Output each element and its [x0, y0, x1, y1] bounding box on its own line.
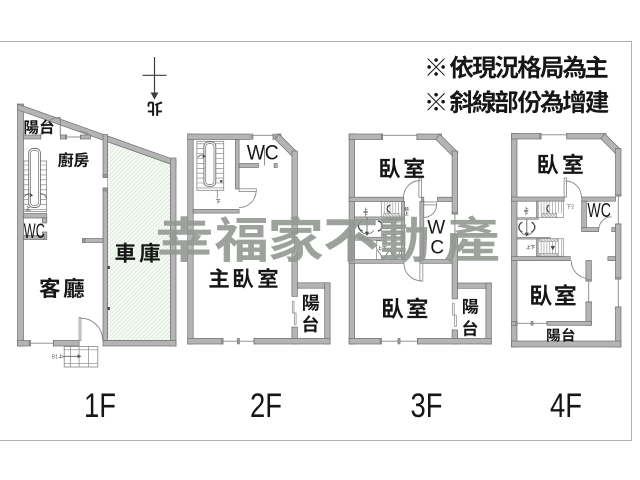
svg-text:WC: WC: [587, 200, 611, 222]
svg-text:4F: 4F: [550, 387, 582, 425]
svg-text:WC: WC: [247, 142, 279, 165]
svg-text:WC: WC: [24, 220, 45, 243]
svg-text:W: W: [427, 218, 445, 239]
svg-text:下2: 下2: [566, 205, 574, 211]
svg-text:B1: B1: [52, 355, 59, 361]
svg-text:2F: 2F: [250, 387, 282, 425]
svg-text:1F: 1F: [84, 387, 116, 425]
svg-text:C: C: [430, 238, 444, 259]
svg-text:3F: 3F: [411, 387, 443, 425]
